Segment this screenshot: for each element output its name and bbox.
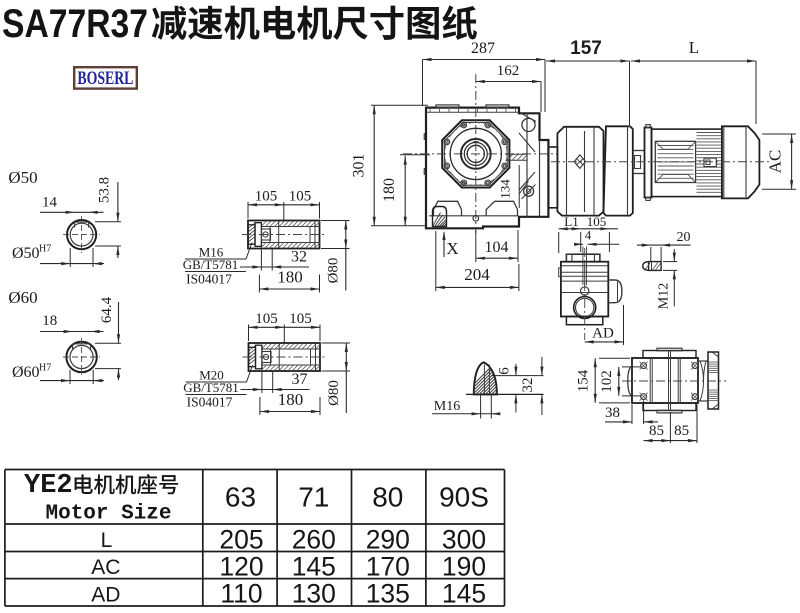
- svg-text:85: 85: [674, 423, 689, 439]
- svg-text:105: 105: [255, 189, 278, 205]
- svg-text:Ø60: Ø60: [12, 364, 40, 381]
- svg-text:Motor Size: Motor Size: [46, 503, 172, 526]
- svg-text:14: 14: [42, 195, 58, 211]
- svg-text:20: 20: [677, 230, 691, 245]
- svg-text:71: 71: [298, 482, 329, 513]
- svg-text:145: 145: [292, 552, 336, 582]
- svg-text:80: 80: [372, 482, 403, 513]
- svg-text:M12: M12: [657, 283, 672, 309]
- svg-text:Ø60: Ø60: [8, 288, 37, 307]
- svg-text:105: 105: [289, 311, 312, 327]
- svg-text:105: 105: [289, 189, 312, 205]
- svg-text:Ø50: Ø50: [12, 245, 40, 262]
- svg-text:205: 205: [219, 525, 263, 555]
- svg-text:H7: H7: [39, 363, 51, 374]
- svg-text:64.4: 64.4: [99, 296, 115, 323]
- svg-text:L: L: [689, 38, 699, 57]
- svg-text:AC: AC: [766, 150, 785, 174]
- svg-text:AD: AD: [592, 326, 614, 342]
- svg-text:AC: AC: [91, 556, 120, 579]
- svg-text:X: X: [446, 239, 458, 258]
- svg-text:GB/T5781: GB/T5781: [183, 380, 239, 395]
- svg-text:IS04017: IS04017: [187, 395, 233, 410]
- svg-text:157: 157: [570, 38, 602, 59]
- svg-text:90S: 90S: [439, 482, 489, 513]
- svg-text:301: 301: [351, 154, 368, 178]
- svg-text:105: 105: [255, 311, 278, 327]
- svg-text:145: 145: [442, 579, 486, 609]
- svg-text:BOSERL: BOSERL: [77, 68, 133, 89]
- svg-text:162: 162: [497, 63, 520, 79]
- svg-text:4: 4: [585, 228, 592, 243]
- svg-text:85: 85: [649, 423, 664, 439]
- svg-text:180: 180: [278, 390, 304, 409]
- svg-text:SA77R37: SA77R37: [2, 2, 148, 46]
- svg-text:37: 37: [292, 371, 308, 388]
- svg-text:AD: AD: [91, 584, 120, 607]
- svg-text:GB/T5781: GB/T5781: [183, 257, 239, 272]
- svg-text:IS04017: IS04017: [186, 272, 232, 287]
- svg-text:18: 18: [42, 313, 57, 329]
- svg-text:32: 32: [291, 249, 307, 266]
- svg-text:38: 38: [605, 405, 620, 421]
- svg-text:M16: M16: [434, 399, 460, 414]
- svg-text:190: 190: [442, 552, 486, 582]
- svg-text:130: 130: [292, 579, 336, 609]
- svg-text:204: 204: [464, 265, 490, 284]
- svg-text:180: 180: [277, 268, 303, 287]
- svg-text:300: 300: [442, 525, 486, 555]
- svg-text:Ø50: Ø50: [8, 168, 37, 187]
- svg-text:Ø80: Ø80: [326, 258, 342, 284]
- svg-text:L1: L1: [564, 214, 578, 229]
- svg-text:102: 102: [599, 370, 615, 393]
- svg-text:6: 6: [497, 367, 513, 375]
- svg-text:287: 287: [471, 40, 495, 57]
- svg-text:134: 134: [498, 179, 513, 199]
- svg-text:154: 154: [576, 369, 592, 392]
- svg-text:63: 63: [225, 482, 256, 513]
- svg-text:H7: H7: [39, 244, 51, 255]
- svg-text:135: 135: [366, 579, 410, 609]
- svg-text:Ø80: Ø80: [326, 380, 342, 406]
- svg-text:104: 104: [485, 239, 509, 256]
- svg-text:YE2: YE2: [24, 471, 73, 501]
- svg-text:110: 110: [220, 579, 262, 609]
- svg-text:L: L: [101, 529, 113, 552]
- svg-text:32: 32: [520, 378, 536, 393]
- svg-text:260: 260: [292, 525, 336, 555]
- svg-text:120: 120: [219, 552, 263, 582]
- svg-text:180: 180: [381, 178, 398, 202]
- svg-text:53.8: 53.8: [97, 177, 113, 203]
- svg-text:170: 170: [366, 552, 410, 582]
- svg-text:290: 290: [366, 525, 410, 555]
